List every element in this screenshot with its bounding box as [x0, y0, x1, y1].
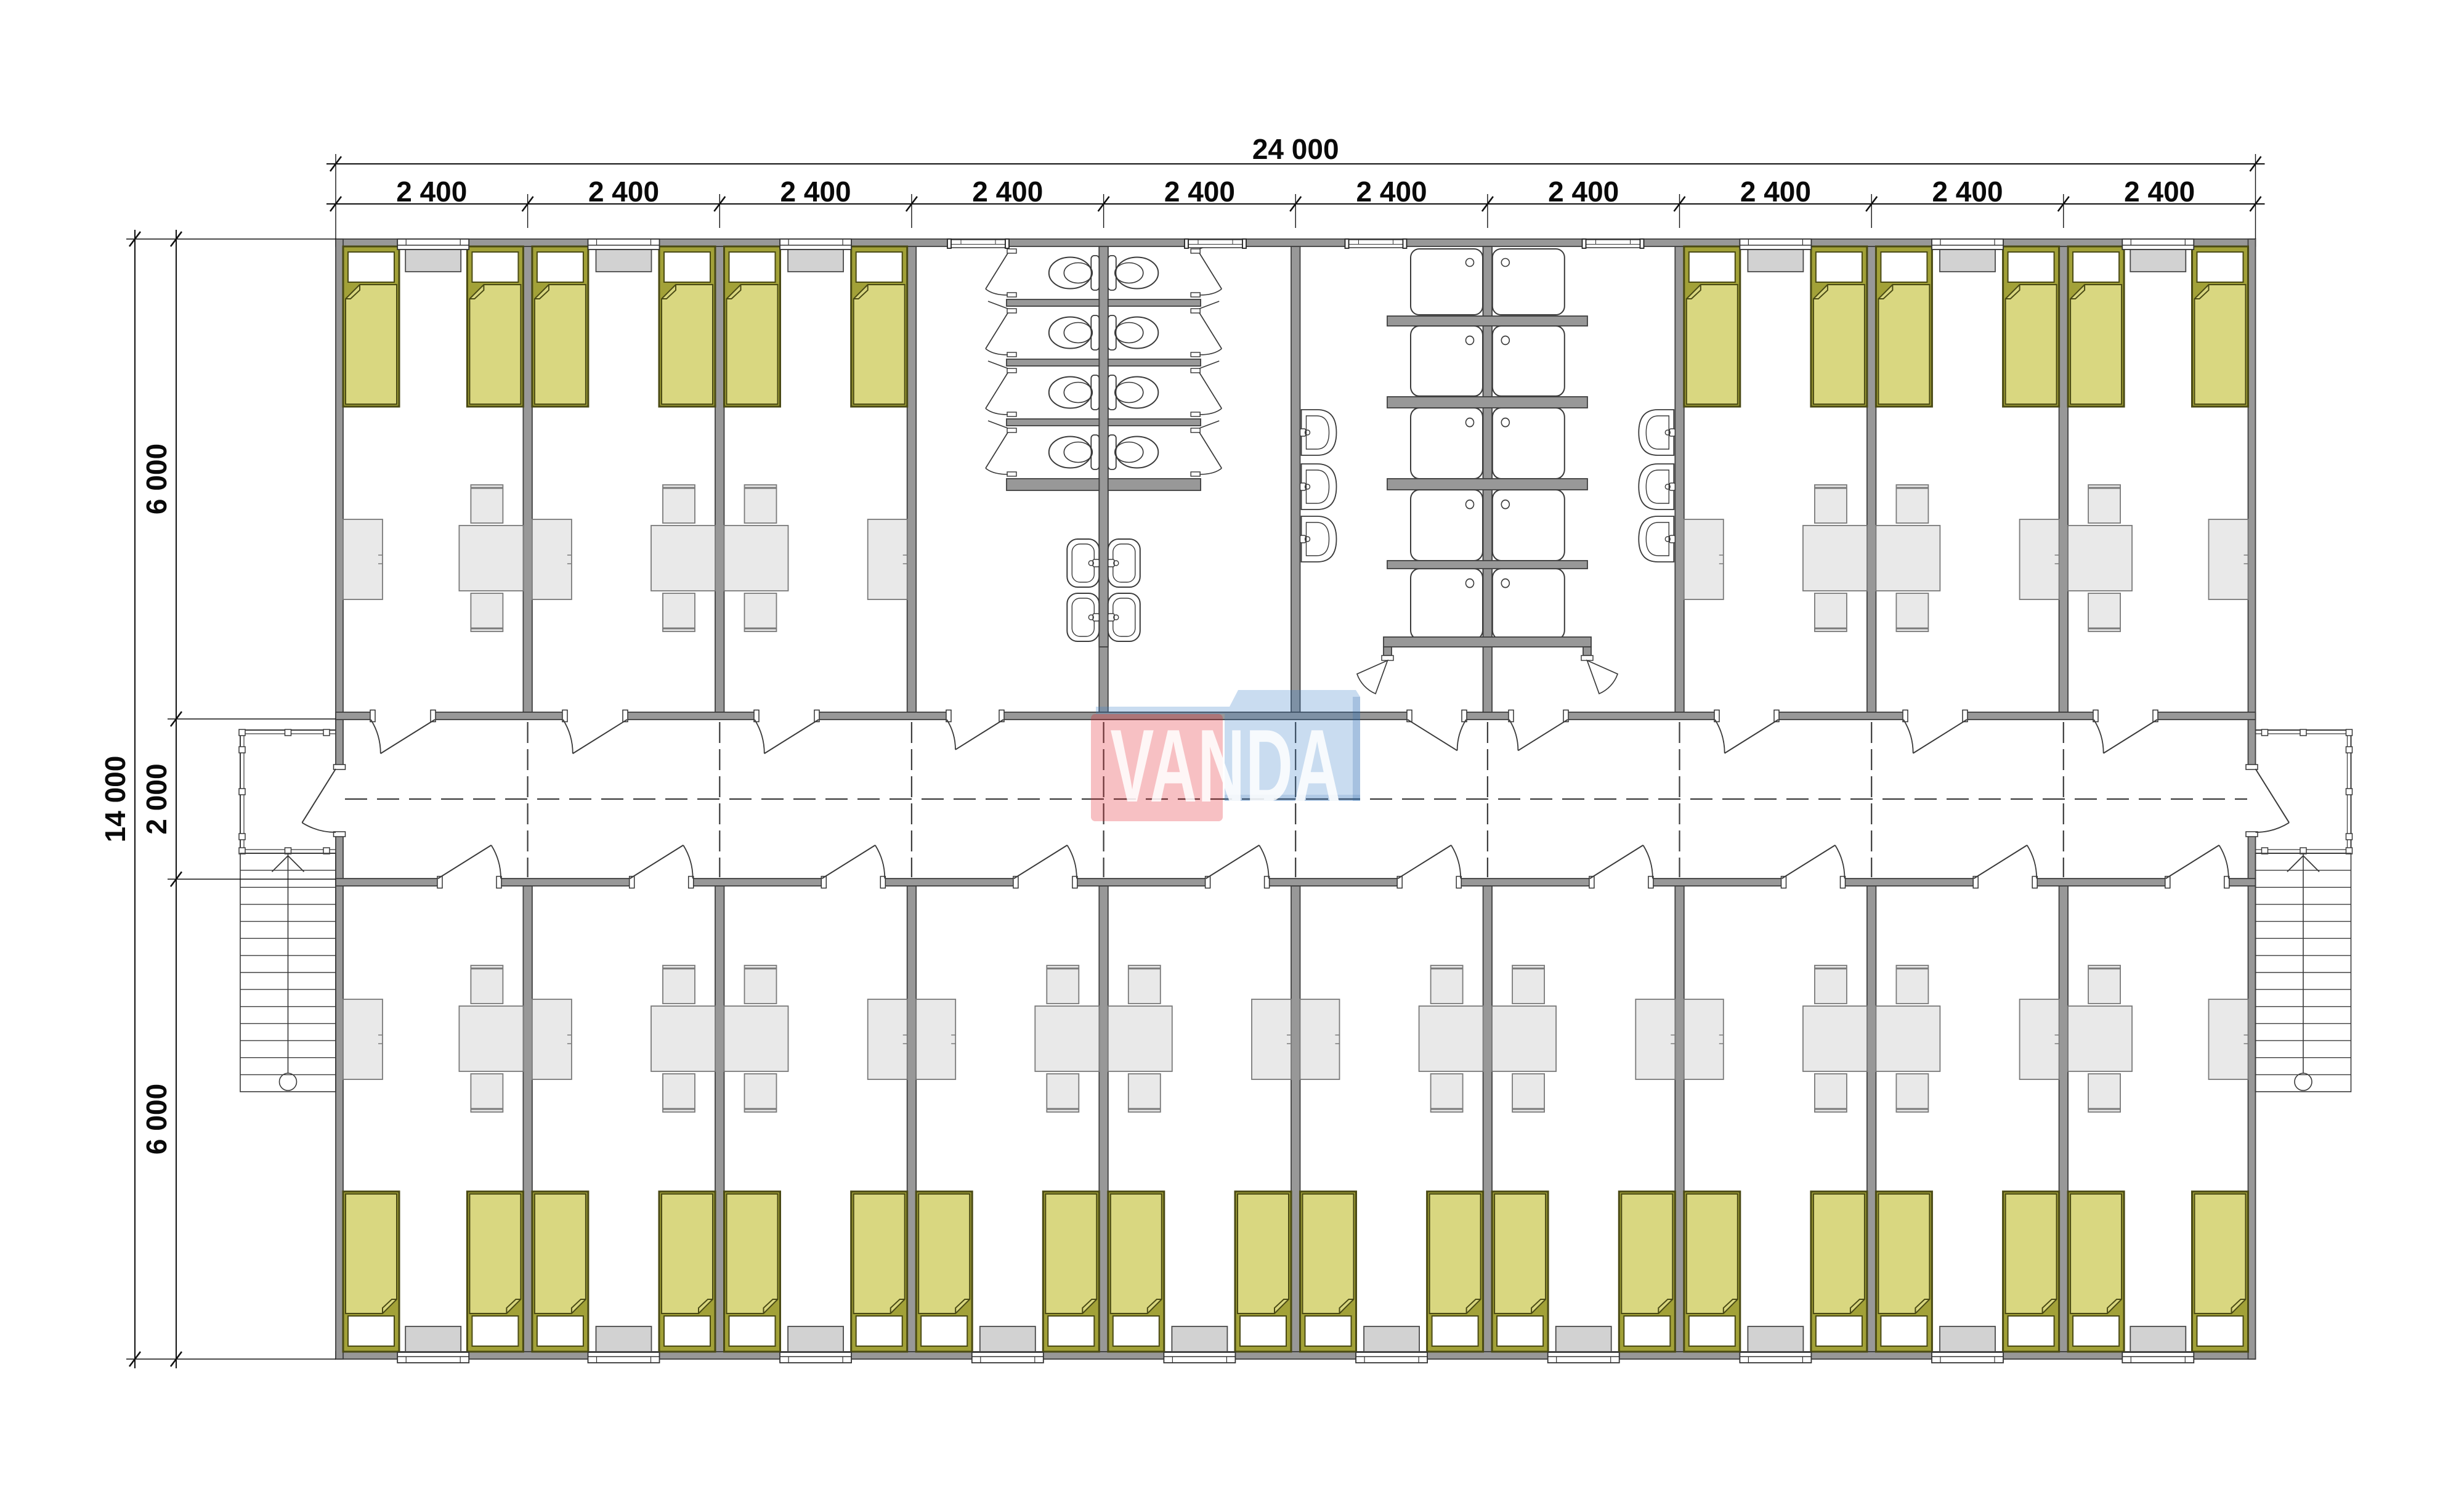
- svg-text:2 400: 2 400: [396, 176, 467, 208]
- svg-text:24 000: 24 000: [1252, 133, 1339, 165]
- svg-text:2 400: 2 400: [1164, 176, 1235, 208]
- svg-text:VANDA: VANDA: [1110, 708, 1341, 824]
- svg-text:2 400: 2 400: [1356, 176, 1427, 208]
- svg-text:2 000: 2 000: [140, 763, 172, 834]
- svg-text:6 000: 6 000: [140, 1084, 172, 1155]
- svg-text:2 400: 2 400: [780, 176, 851, 208]
- svg-text:6 000: 6 000: [140, 444, 172, 514]
- svg-text:2 400: 2 400: [1548, 176, 1619, 208]
- svg-text:2 400: 2 400: [1932, 176, 2003, 208]
- svg-text:2 400: 2 400: [1740, 176, 1811, 208]
- svg-text:2 400: 2 400: [972, 176, 1043, 208]
- svg-text:14 000: 14 000: [99, 756, 131, 843]
- svg-text:2 400: 2 400: [2124, 176, 2195, 208]
- svg-text:2 400: 2 400: [588, 176, 659, 208]
